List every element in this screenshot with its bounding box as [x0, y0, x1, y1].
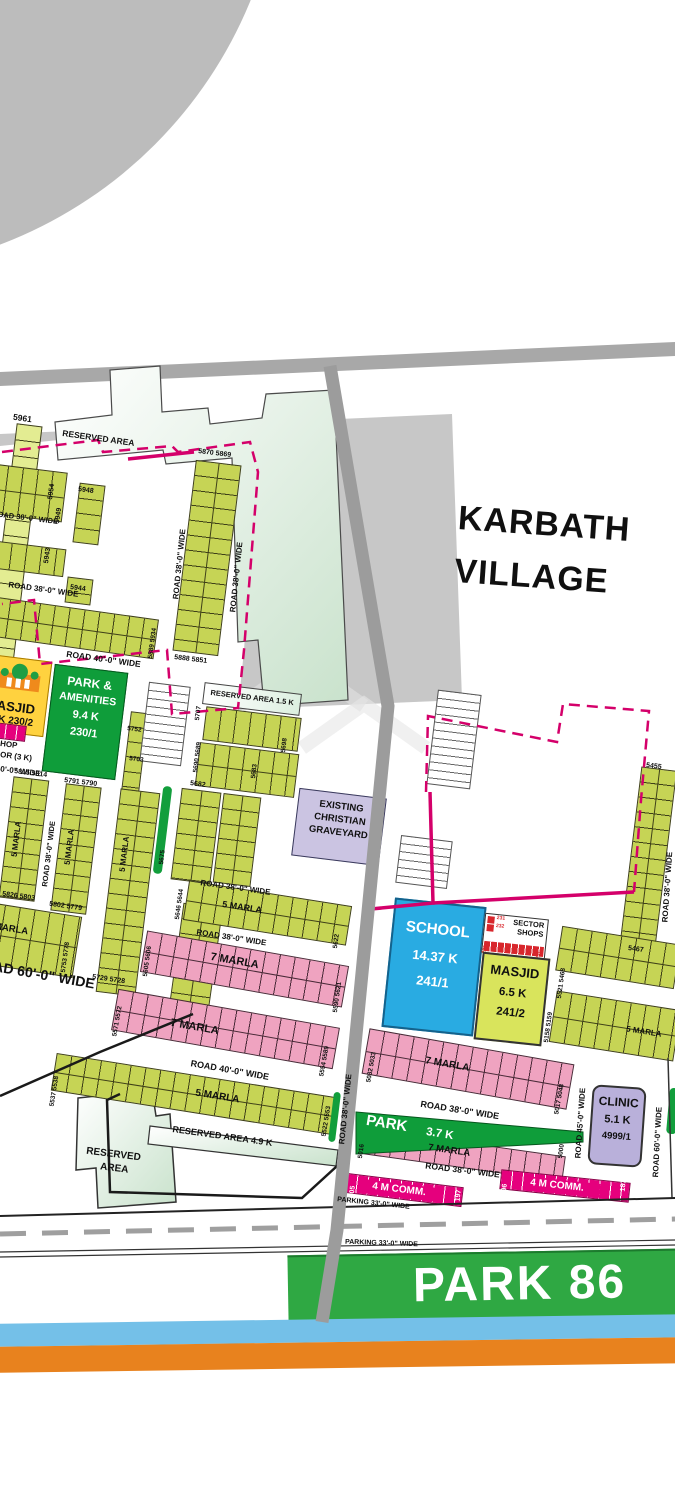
plot-number: 5961: [12, 413, 32, 424]
plot-number: 5016: [358, 1144, 367, 1159]
plot-number: 5675: [159, 850, 168, 865]
road-label-vertical: ROAD 60'-0" WIDE: [651, 1097, 664, 1187]
reserved-bottom-label: AREA: [99, 1162, 128, 1176]
school-line: SCHOOL: [393, 918, 482, 943]
reserved-bottom-label: RESERVED: [86, 1147, 142, 1164]
masjid-line: 6.5 K: [480, 983, 545, 1002]
green-strip: [666, 1088, 675, 1135]
mosque-icon: [0, 658, 45, 693]
reserved-15k-label: RESERVED AREA 1.5 K: [204, 688, 300, 708]
steps-hatch: [426, 690, 481, 790]
plot-number: 5682: [190, 780, 206, 789]
road-label-vertical: ROAD 38'-0" WIDE: [337, 1064, 355, 1154]
plot-number: 5698: [281, 738, 290, 753]
park-86-label: PARK 86: [413, 1258, 627, 1312]
plot-number: 205: [348, 1185, 357, 1197]
gray-corner-blob: [0, 0, 283, 273]
shop-plot: [486, 924, 494, 932]
plot-number: 187: [619, 1179, 628, 1191]
shop-plot-number: 231: [496, 916, 505, 922]
plot-number: 5889 5934: [148, 628, 159, 659]
park-amenities-line: 9.4 K: [49, 706, 122, 726]
shop-text: HOP: [0, 740, 18, 750]
plot-strip: [549, 990, 675, 1061]
road-label: ROAD 38'-0" WIDE: [420, 1100, 500, 1122]
shop-plot-number: 232: [496, 924, 505, 930]
reserved-49k-label: RESERVED AREA 4.9 K: [172, 1125, 273, 1148]
reserved-area-label: RESERVED AREA: [62, 429, 135, 448]
boundary-solid: [128, 452, 194, 459]
park-amenities-box: PARK & AMENITIES 9.4 K 230/1: [42, 664, 129, 780]
plot-strip: [213, 793, 262, 887]
masjid-line: MASJID: [482, 962, 547, 982]
clinic-box: CLINIC 5.1 K 4999/1: [587, 1084, 646, 1168]
steps-hatch: [395, 835, 452, 889]
road-label: PARKING 33'-0" WIDE: [345, 1239, 418, 1249]
steps-hatch: [139, 682, 190, 767]
clinic-line: CLINIC: [593, 1094, 644, 1110]
clinic-line: 5.1 K: [592, 1113, 643, 1128]
masjid-line: 241/2: [478, 1003, 543, 1022]
clinic-line: 4999/1: [591, 1130, 642, 1143]
park-amenities-line: 230/1: [47, 724, 120, 744]
plot-number: 197: [454, 1189, 463, 1201]
plot-map: PARK 86 PARK & AMENITIES 9.4 K 230/1 RES…: [0, 0, 675, 1500]
graveyard-box: EXISTING CHRISTIAN GRAVEYARD: [291, 788, 387, 866]
plot-number: 196: [500, 1183, 509, 1195]
plot-number: 5707: [195, 706, 204, 721]
road-stub: [118, 372, 151, 442]
plot-strip: [50, 783, 101, 914]
road-centerline: [0, 1219, 675, 1234]
watermark-chevron: [302, 704, 426, 748]
school-box: SCHOOL 14.37 K 241/1: [381, 898, 486, 1037]
sector-shops-label: SHOPS: [517, 928, 544, 939]
park-86-band: PARK 86: [287, 1249, 675, 1326]
plot-number: 5622: [333, 934, 342, 949]
plot-number: 5870 5869: [198, 448, 232, 459]
shop-plot: [487, 916, 495, 924]
plot-strip: [555, 926, 675, 989]
village-title-line2: VILLAGE: [453, 545, 629, 610]
school-line: 14.37 K: [391, 945, 480, 968]
school-line: 241/1: [388, 971, 477, 994]
plot-number: 5888 5851: [174, 654, 208, 665]
road-label-vertical: ROAD 45'-0" WIDE: [574, 1078, 589, 1168]
boundary-solid: [433, 892, 634, 903]
map-frame-band: [0, 342, 675, 386]
masjid-2-box: MASJID 6.5 K 241/2: [474, 952, 551, 1047]
village-title: KARBATH VILLAGE: [453, 492, 633, 610]
shop-text: OR (3 K): [0, 751, 32, 763]
plot-number: 5949: [54, 507, 63, 523]
